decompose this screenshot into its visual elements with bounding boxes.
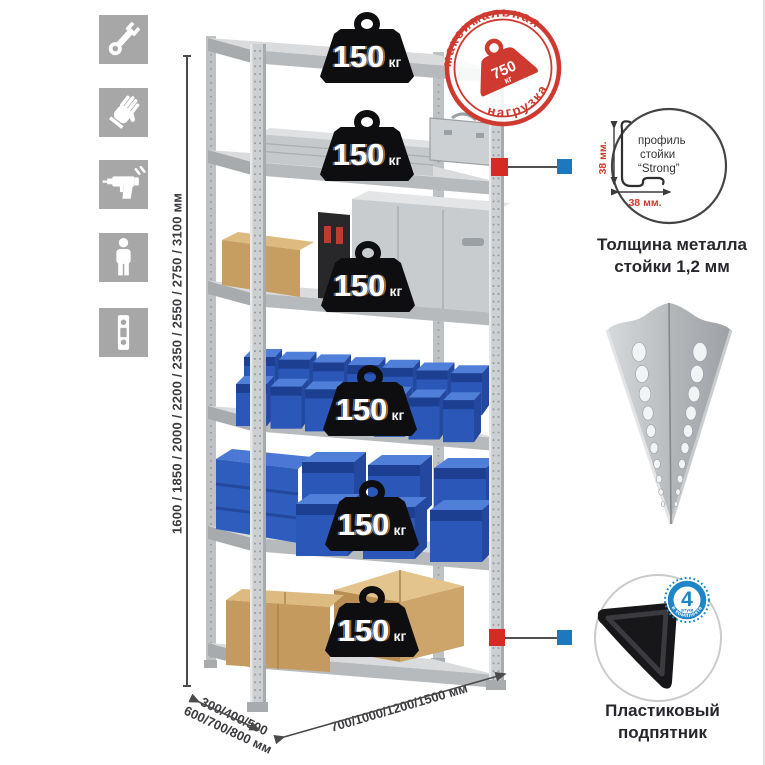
- shelf2-load-badge: 150кг: [320, 110, 414, 181]
- shelf5-load-badge: 150кг: [325, 480, 419, 551]
- foot-count-note: штуки: [681, 608, 694, 613]
- shelf6-load-badge: 150кг: [325, 586, 419, 657]
- post-profile-detail: 38 мм. 38 мм. профиль стойки “Strong”: [598, 100, 748, 240]
- connector-line-top: [508, 166, 557, 168]
- profile-label-1: профиль: [638, 135, 686, 147]
- corner-post-image: [597, 296, 742, 531]
- profile-dim-width: 38 мм.: [628, 197, 661, 209]
- connector-blue-bottom: [557, 630, 572, 645]
- product-infographic: 1600 / 1850 / 2000 / 2200 / 2350 / 2550 …: [0, 0, 765, 765]
- max-load-stamp: максимальная нагрузка 750 кг: [440, 5, 566, 131]
- load-value: 150: [336, 394, 388, 425]
- profile-dim-height: 38 мм.: [598, 141, 609, 174]
- load-unit: кг: [389, 283, 402, 299]
- load-value: 150: [338, 509, 390, 540]
- connector-line-bottom: [505, 637, 557, 639]
- load-value: 150: [338, 615, 390, 646]
- load-unit: кг: [388, 54, 401, 70]
- plastic-foot-detail: 4 штуки в комплекте: [588, 566, 733, 716]
- profile-label-3: “Strong”: [638, 163, 680, 175]
- shelf1-load-badge: 150кг: [320, 12, 414, 83]
- profile-caption-line1: Толщина металла: [597, 235, 747, 254]
- load-value: 150: [333, 139, 385, 170]
- load-unit: кг: [393, 522, 406, 538]
- shelf3-load-badge: 150кг: [321, 241, 415, 312]
- profile-label-2: стойки: [640, 149, 675, 161]
- load-unit: кг: [388, 152, 401, 168]
- connector-red-bottom: [489, 629, 505, 646]
- load-unit: кг: [393, 628, 406, 644]
- profile-caption: Толщина металла стойки 1,2 мм: [583, 234, 761, 278]
- width-arrow: [284, 674, 505, 737]
- foot-caption-line2: подпятник: [618, 723, 707, 742]
- connector-red-top: [491, 158, 508, 176]
- profile-caption-line2: стойки 1,2 мм: [614, 257, 730, 276]
- foot-caption-line1: Пластиковый: [605, 701, 720, 720]
- shelf4-load-badge: 150кг: [323, 365, 417, 436]
- foot-caption: Пластиковый подпятник: [580, 700, 745, 744]
- load-value: 150: [333, 41, 385, 72]
- connector-blue-top: [557, 159, 572, 174]
- load-unit: кг: [391, 407, 404, 423]
- load-value: 150: [334, 270, 386, 301]
